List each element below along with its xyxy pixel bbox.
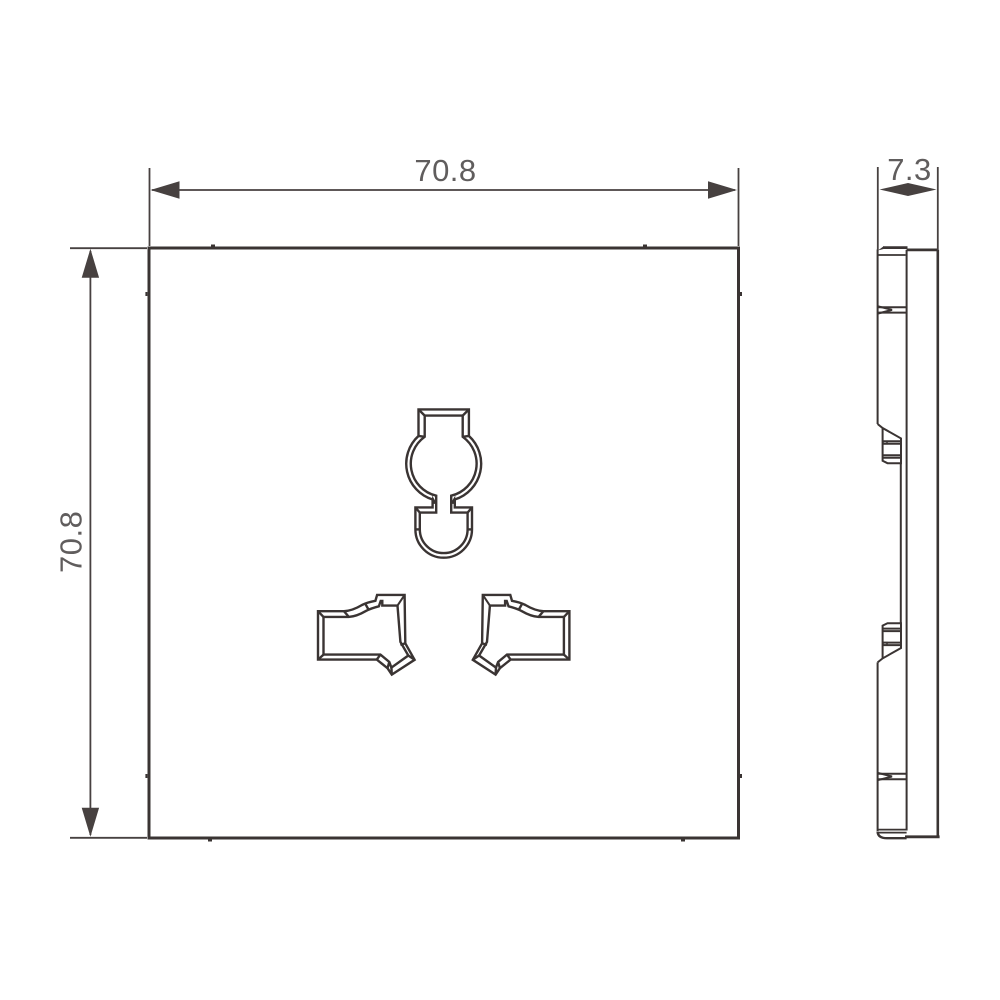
svg-text:70.8: 70.8: [53, 511, 88, 573]
svg-text:7.3: 7.3: [887, 152, 932, 187]
svg-text:70.8: 70.8: [414, 153, 476, 188]
